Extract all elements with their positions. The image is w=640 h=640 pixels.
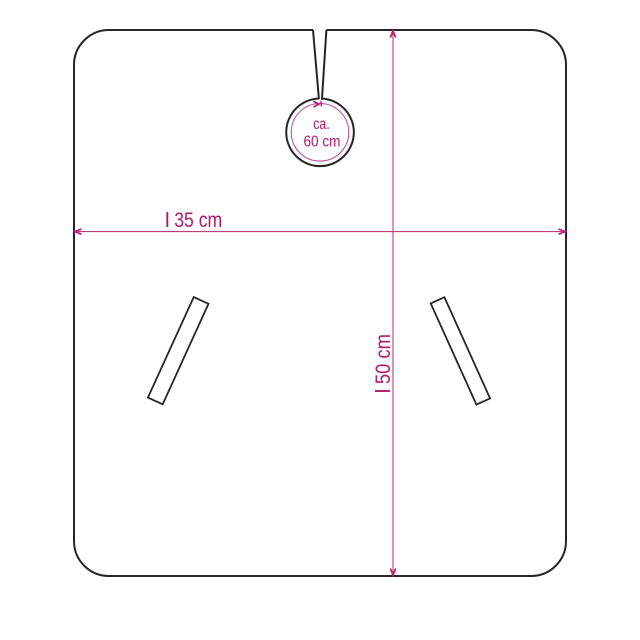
svg-text:35 cm: 35 cm [174, 209, 222, 232]
svg-text:ca.: ca. [313, 116, 330, 133]
svg-text:50 cm: 50 cm [372, 334, 395, 384]
svg-text:60 cm: 60 cm [304, 133, 341, 150]
